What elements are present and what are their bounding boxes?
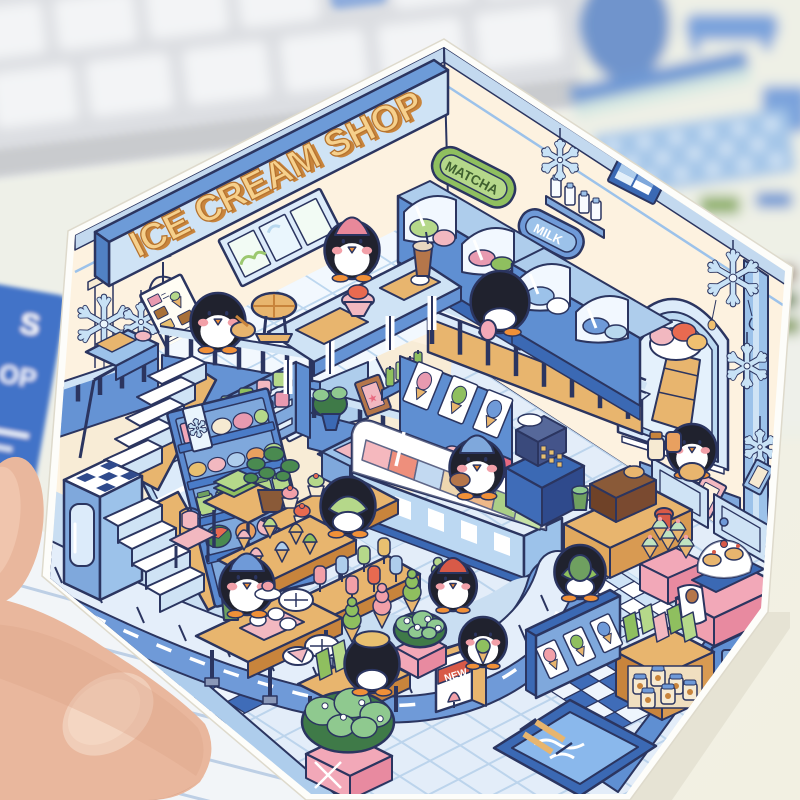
svg-text:OP: OP xyxy=(0,358,39,394)
